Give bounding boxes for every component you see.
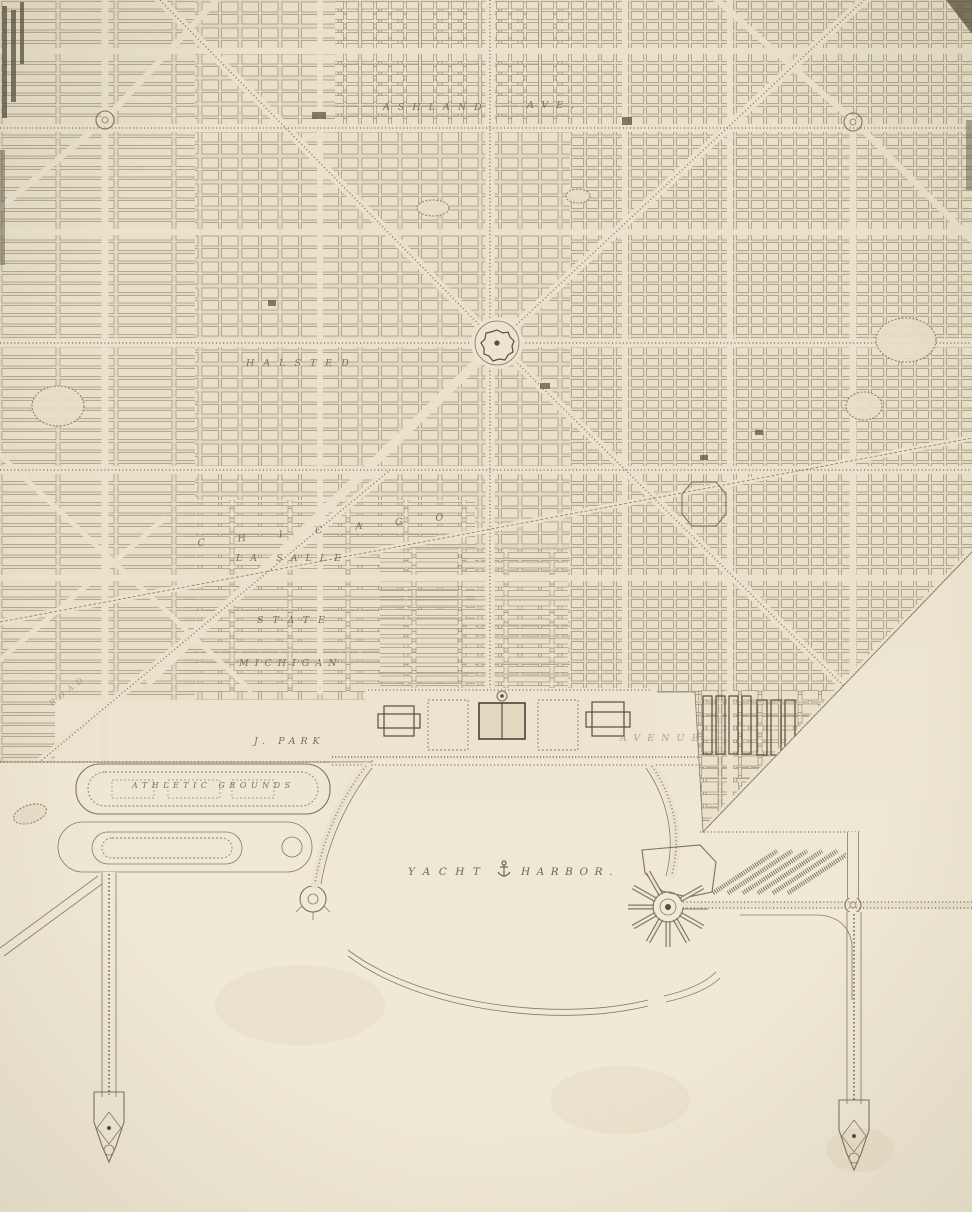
street-pattern-strips xyxy=(380,548,568,692)
map-plate: ASHLAND AVE. HALSTED CHICAGO LA SALLE ST… xyxy=(0,0,972,1212)
street-label-state: STATE xyxy=(257,615,334,626)
map-canvas: ASHLAND AVE. HALSTED CHICAGO LA SALLE ST… xyxy=(0,0,972,1212)
museum-center xyxy=(479,703,525,739)
place-label-avenue: AVENUE xyxy=(619,733,705,744)
lakefront-formal-gardens xyxy=(332,688,700,765)
street-label-ashland: ASHLAND xyxy=(382,102,490,113)
place-label-athletic-grounds: ATHLETIC GROUNDS xyxy=(131,781,295,790)
place-label-j-park: J. PARK xyxy=(252,736,325,747)
street-label-michigan: MICHIGAN xyxy=(238,658,343,669)
street-label-la-salle: LA SALLE xyxy=(235,553,349,564)
water-label-yacht: YACHT xyxy=(408,866,488,878)
street-label-ashland-ave: AVE. xyxy=(526,100,582,111)
water-label-harbor: HARBOR. xyxy=(520,866,619,878)
street-label-halsted: HALSTED xyxy=(245,358,358,369)
civic-center-plaza xyxy=(471,317,523,369)
